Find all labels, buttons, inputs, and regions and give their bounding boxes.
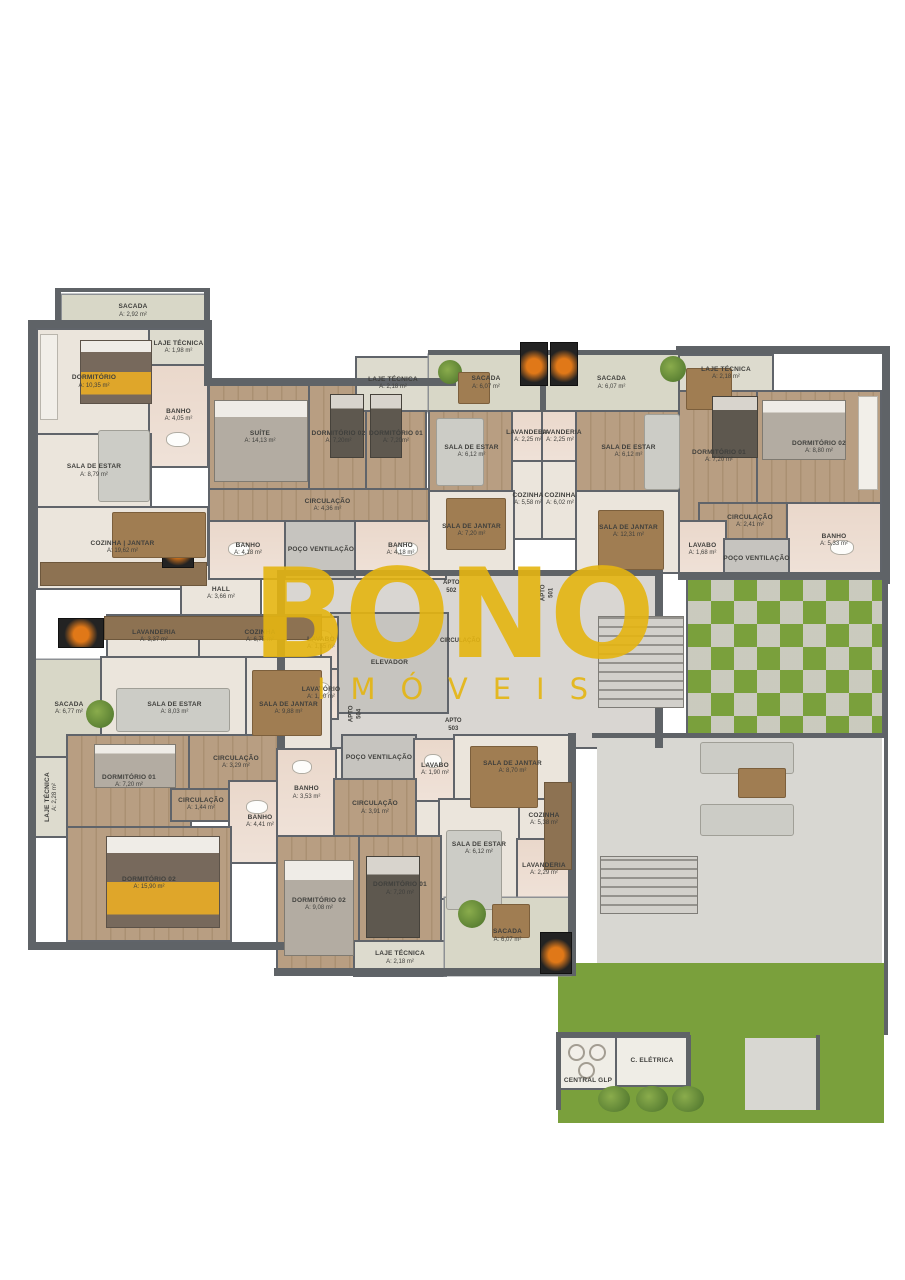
- stairs: [598, 616, 684, 708]
- wall-segment: [676, 346, 888, 354]
- wall-segment: [204, 378, 456, 386]
- sala-estar-c-area: A: 6,12 m²: [615, 452, 643, 460]
- circulacao-a-name: CIRCULAÇÃO: [305, 498, 351, 506]
- gas-tank-icon: [568, 1044, 585, 1061]
- lavabo-c-area: A: 1,68 m²: [689, 550, 717, 558]
- wall-segment: [816, 1035, 820, 1110]
- bed-dark: [712, 396, 758, 458]
- sofa: [644, 414, 680, 490]
- wall-segment: [55, 290, 61, 322]
- bathroom-fixture: [228, 542, 250, 556]
- wall-segment: [28, 320, 36, 645]
- plant-icon: [598, 1086, 630, 1112]
- dormitorio-01-c-area: A: 7,20 m²: [705, 457, 733, 465]
- elevador-name: ELEVADOR: [371, 659, 408, 667]
- hall-a-area: A: 3,66 m²: [207, 594, 235, 602]
- bed: [94, 744, 176, 788]
- bathroom-fixture: [396, 542, 418, 556]
- bathroom-fixture: [424, 754, 442, 768]
- cozinha-c-label: COZINHAA: 6,02 m²: [543, 462, 577, 538]
- table: [458, 372, 490, 404]
- sacada-a-area: A: 2,92 m²: [119, 312, 147, 320]
- sacada-c-area: A: 6,07 m²: [598, 384, 626, 392]
- banho-a-area: A: 4,05 m²: [165, 416, 193, 424]
- laje-tecnica-a: LAJE TÉCNICAA: 1,98 m²: [150, 330, 207, 366]
- wall-segment: [882, 346, 890, 584]
- circulacao-d2: CIRCULAÇÃOA: 1,44 m²: [172, 790, 230, 820]
- sacada-d-name: SACADA: [54, 701, 83, 709]
- bathroom-fixture: [830, 540, 854, 555]
- banho-f-area: A: 3,53 m²: [293, 794, 321, 802]
- circulacao-e-area: A: 3,91 m²: [361, 809, 389, 817]
- stairs: [600, 856, 698, 914]
- kitchen-counter: [544, 782, 572, 870]
- sofa: [446, 830, 502, 910]
- cozinha-b: COZINHAA: 5,58 m²: [513, 462, 543, 538]
- hall-a-name: HALL: [212, 586, 230, 594]
- c-eletrica-label: C. ELÉTRICA: [617, 1038, 687, 1085]
- wall-segment: [556, 1032, 690, 1037]
- lavabo-c: LAVABOA: 1,68 m²: [680, 522, 725, 578]
- plant-icon: [672, 1086, 704, 1112]
- sofa: [436, 418, 484, 486]
- laje-tecnica-e-name: LAJE TÉCNICA: [375, 950, 425, 958]
- plant-icon: [86, 700, 114, 728]
- circulacao-e-label: CIRCULAÇÃOA: 3,91 m²: [335, 780, 415, 837]
- gas-tank-icon: [578, 1062, 595, 1079]
- wall-segment: [28, 942, 294, 950]
- bed: [214, 400, 308, 482]
- poco-ventilacao-e: POÇO VENTILAÇÃO: [343, 736, 415, 780]
- elevador: ELEVADOR: [332, 614, 447, 712]
- poco-ventilacao-e-label: POÇO VENTILAÇÃO: [343, 736, 415, 780]
- cozinha-b-label: COZINHAA: 5,58 m²: [513, 462, 543, 538]
- circulacao-d2-label: CIRCULAÇÃOA: 1,44 m²: [172, 790, 230, 820]
- laje-tecnica-d: LAJE TÉCNICAA: 2,28 m²: [36, 758, 68, 836]
- table: [112, 512, 206, 558]
- lavanderia-b-area: A: 2,25 m²: [514, 437, 542, 445]
- laje-tecnica-d-name: LAJE TÉCNICA: [44, 772, 52, 822]
- lavabo-e: LAVABOA: 1,90 m²: [415, 740, 455, 800]
- table: [446, 498, 506, 550]
- circulacao-a-area: A: 4,36 m²: [314, 506, 342, 514]
- table: [738, 768, 786, 798]
- laje-tecnica-a-area: A: 1,98 m²: [165, 348, 193, 356]
- barbecue-grill-icon: [550, 342, 578, 386]
- bed-dark: [370, 394, 402, 458]
- laje-tecnica-a-label: LAJE TÉCNICAA: 1,98 m²: [150, 330, 207, 366]
- bathroom-fixture: [166, 432, 190, 447]
- elevador-label: ELEVADOR: [332, 614, 447, 712]
- c-eletrica: C. ELÉTRICA: [617, 1038, 687, 1085]
- barbecue-grill-icon: [58, 618, 104, 648]
- plant-icon: [458, 900, 486, 928]
- circulacao-d1-name: CIRCULAÇÃO: [213, 755, 259, 763]
- wall-segment: [884, 580, 888, 1035]
- lavanderia-b: LAVANDERIAA: 2,25 m²: [513, 412, 543, 462]
- sofa: [98, 430, 150, 502]
- c-eletrica-name: C. ELÉTRICA: [630, 1057, 673, 1065]
- barbecue-grill-icon: [520, 342, 548, 386]
- banho-a: BANHOA: 4,05 m²: [150, 366, 207, 466]
- poco-ventilacao-a-name: POÇO VENTILAÇÃO: [288, 546, 354, 554]
- table: [492, 904, 530, 938]
- laje-tecnica-d-area: A: 2,28 m²: [52, 783, 60, 811]
- lavabo-c-label: LAVABOA: 1,68 m²: [680, 522, 725, 578]
- wall-segment: [592, 733, 884, 738]
- circulacao-e-name: CIRCULAÇÃO: [352, 800, 398, 808]
- bed-dark: [366, 856, 420, 938]
- lavanderia-e-area: A: 2,29 m²: [530, 870, 558, 878]
- cozinha-c-area: A: 6,02 m²: [546, 500, 574, 508]
- wall-segment: [686, 1035, 691, 1087]
- wall-segment: [28, 610, 36, 950]
- lavabo-c-name: LAVABO: [689, 542, 717, 550]
- floor-plan: CENTRAL GLPC. ELÉTRICASACADAA: 2,92 m²DO…: [0, 0, 905, 1280]
- garden-checker: [688, 578, 882, 736]
- circulacao-c-name: CIRCULAÇÃO: [727, 514, 773, 522]
- bed: [284, 860, 354, 956]
- circulacao-d1-area: A: 3,29 m²: [222, 763, 250, 771]
- cozinha-b-name: COZINHA: [513, 492, 544, 500]
- wardrobe: [858, 396, 878, 490]
- lavanderia-c-label: LAVANDERIAA: 2,25 m²: [543, 412, 577, 462]
- cozinha-b-area: A: 5,58 m²: [514, 500, 542, 508]
- circulacao-d2-name: CIRCULAÇÃO: [178, 797, 224, 805]
- lavabo-e-area: A: 1,90 m²: [421, 770, 449, 778]
- table: [598, 510, 664, 570]
- wall-segment: [279, 570, 663, 576]
- sacada-c-name: SACADA: [597, 375, 626, 383]
- sofa: [116, 688, 230, 732]
- bed: [762, 400, 846, 460]
- laje-tecnica-e-area: A: 2,18 m²: [386, 959, 414, 967]
- lavanderia-c-area: A: 2,25 m²: [546, 437, 574, 445]
- sacada-d-area: A: 6,77 m²: [55, 709, 83, 717]
- floor-plan-page: CENTRAL GLPC. ELÉTRICASACADAA: 2,92 m²DO…: [0, 0, 905, 1280]
- banho-e-area: A: 4,41 m²: [246, 822, 274, 830]
- wall-segment: [204, 290, 210, 322]
- wall-segment: [274, 968, 576, 976]
- bed-yellow-blanket: [106, 836, 220, 928]
- wall-segment: [55, 288, 210, 292]
- circulacao-d2-area: A: 1,44 m²: [187, 805, 215, 813]
- gas-tank-icon: [589, 1044, 606, 1061]
- poco-ventilacao-e-name: POÇO VENTILAÇÃO: [346, 754, 412, 762]
- wall-segment: [556, 1032, 561, 1110]
- bed-yellow-blanket: [80, 340, 152, 404]
- wall-segment: [680, 572, 888, 579]
- banho-a-label: BANHOA: 4,05 m²: [150, 366, 207, 466]
- wardrobe: [40, 334, 58, 420]
- sacada-a-name: SACADA: [118, 303, 147, 311]
- sofa: [700, 804, 794, 836]
- path-vertical: [745, 1038, 818, 1110]
- lavanderia-c: LAVANDERIAA: 2,25 m²: [543, 412, 577, 462]
- table: [252, 670, 322, 736]
- circulacao-a: CIRCULAÇÃOA: 4,36 m²: [210, 490, 445, 522]
- cozinha-c-name: COZINHA: [544, 492, 575, 500]
- bed-dark: [330, 394, 364, 458]
- circulacao-a-label: CIRCULAÇÃOA: 4,36 m²: [210, 490, 445, 522]
- lavanderia-b-label: LAVANDERIAA: 2,25 m²: [513, 412, 543, 462]
- table: [470, 746, 538, 808]
- banho-a-name: BANHO: [166, 408, 191, 416]
- banho-e-name: BANHO: [248, 814, 273, 822]
- laje-tecnica-a-name: LAJE TÉCNICA: [154, 340, 204, 348]
- cozinha-c: COZINHAA: 6,02 m²: [543, 462, 577, 538]
- circulacao-e: CIRCULAÇÃOA: 3,91 m²: [335, 780, 415, 837]
- bathroom-fixture: [246, 800, 268, 814]
- lavabo-e-label: LAVABOA: 1,90 m²: [415, 740, 455, 800]
- poco-ventilacao-c-name: POÇO VENTILAÇÃO: [723, 555, 789, 563]
- wall-segment: [204, 322, 212, 382]
- lavanderia-c-name: LAVANDERIA: [538, 429, 582, 437]
- circulacao-c-area: A: 2,41 m²: [736, 522, 764, 530]
- banho-f-name: BANHO: [294, 785, 319, 793]
- bathroom-fixture: [292, 760, 312, 774]
- plant-icon: [636, 1086, 668, 1112]
- barbecue-grill-icon: [540, 932, 572, 974]
- plant-icon: [660, 356, 686, 382]
- kitchen-counter: [104, 616, 322, 640]
